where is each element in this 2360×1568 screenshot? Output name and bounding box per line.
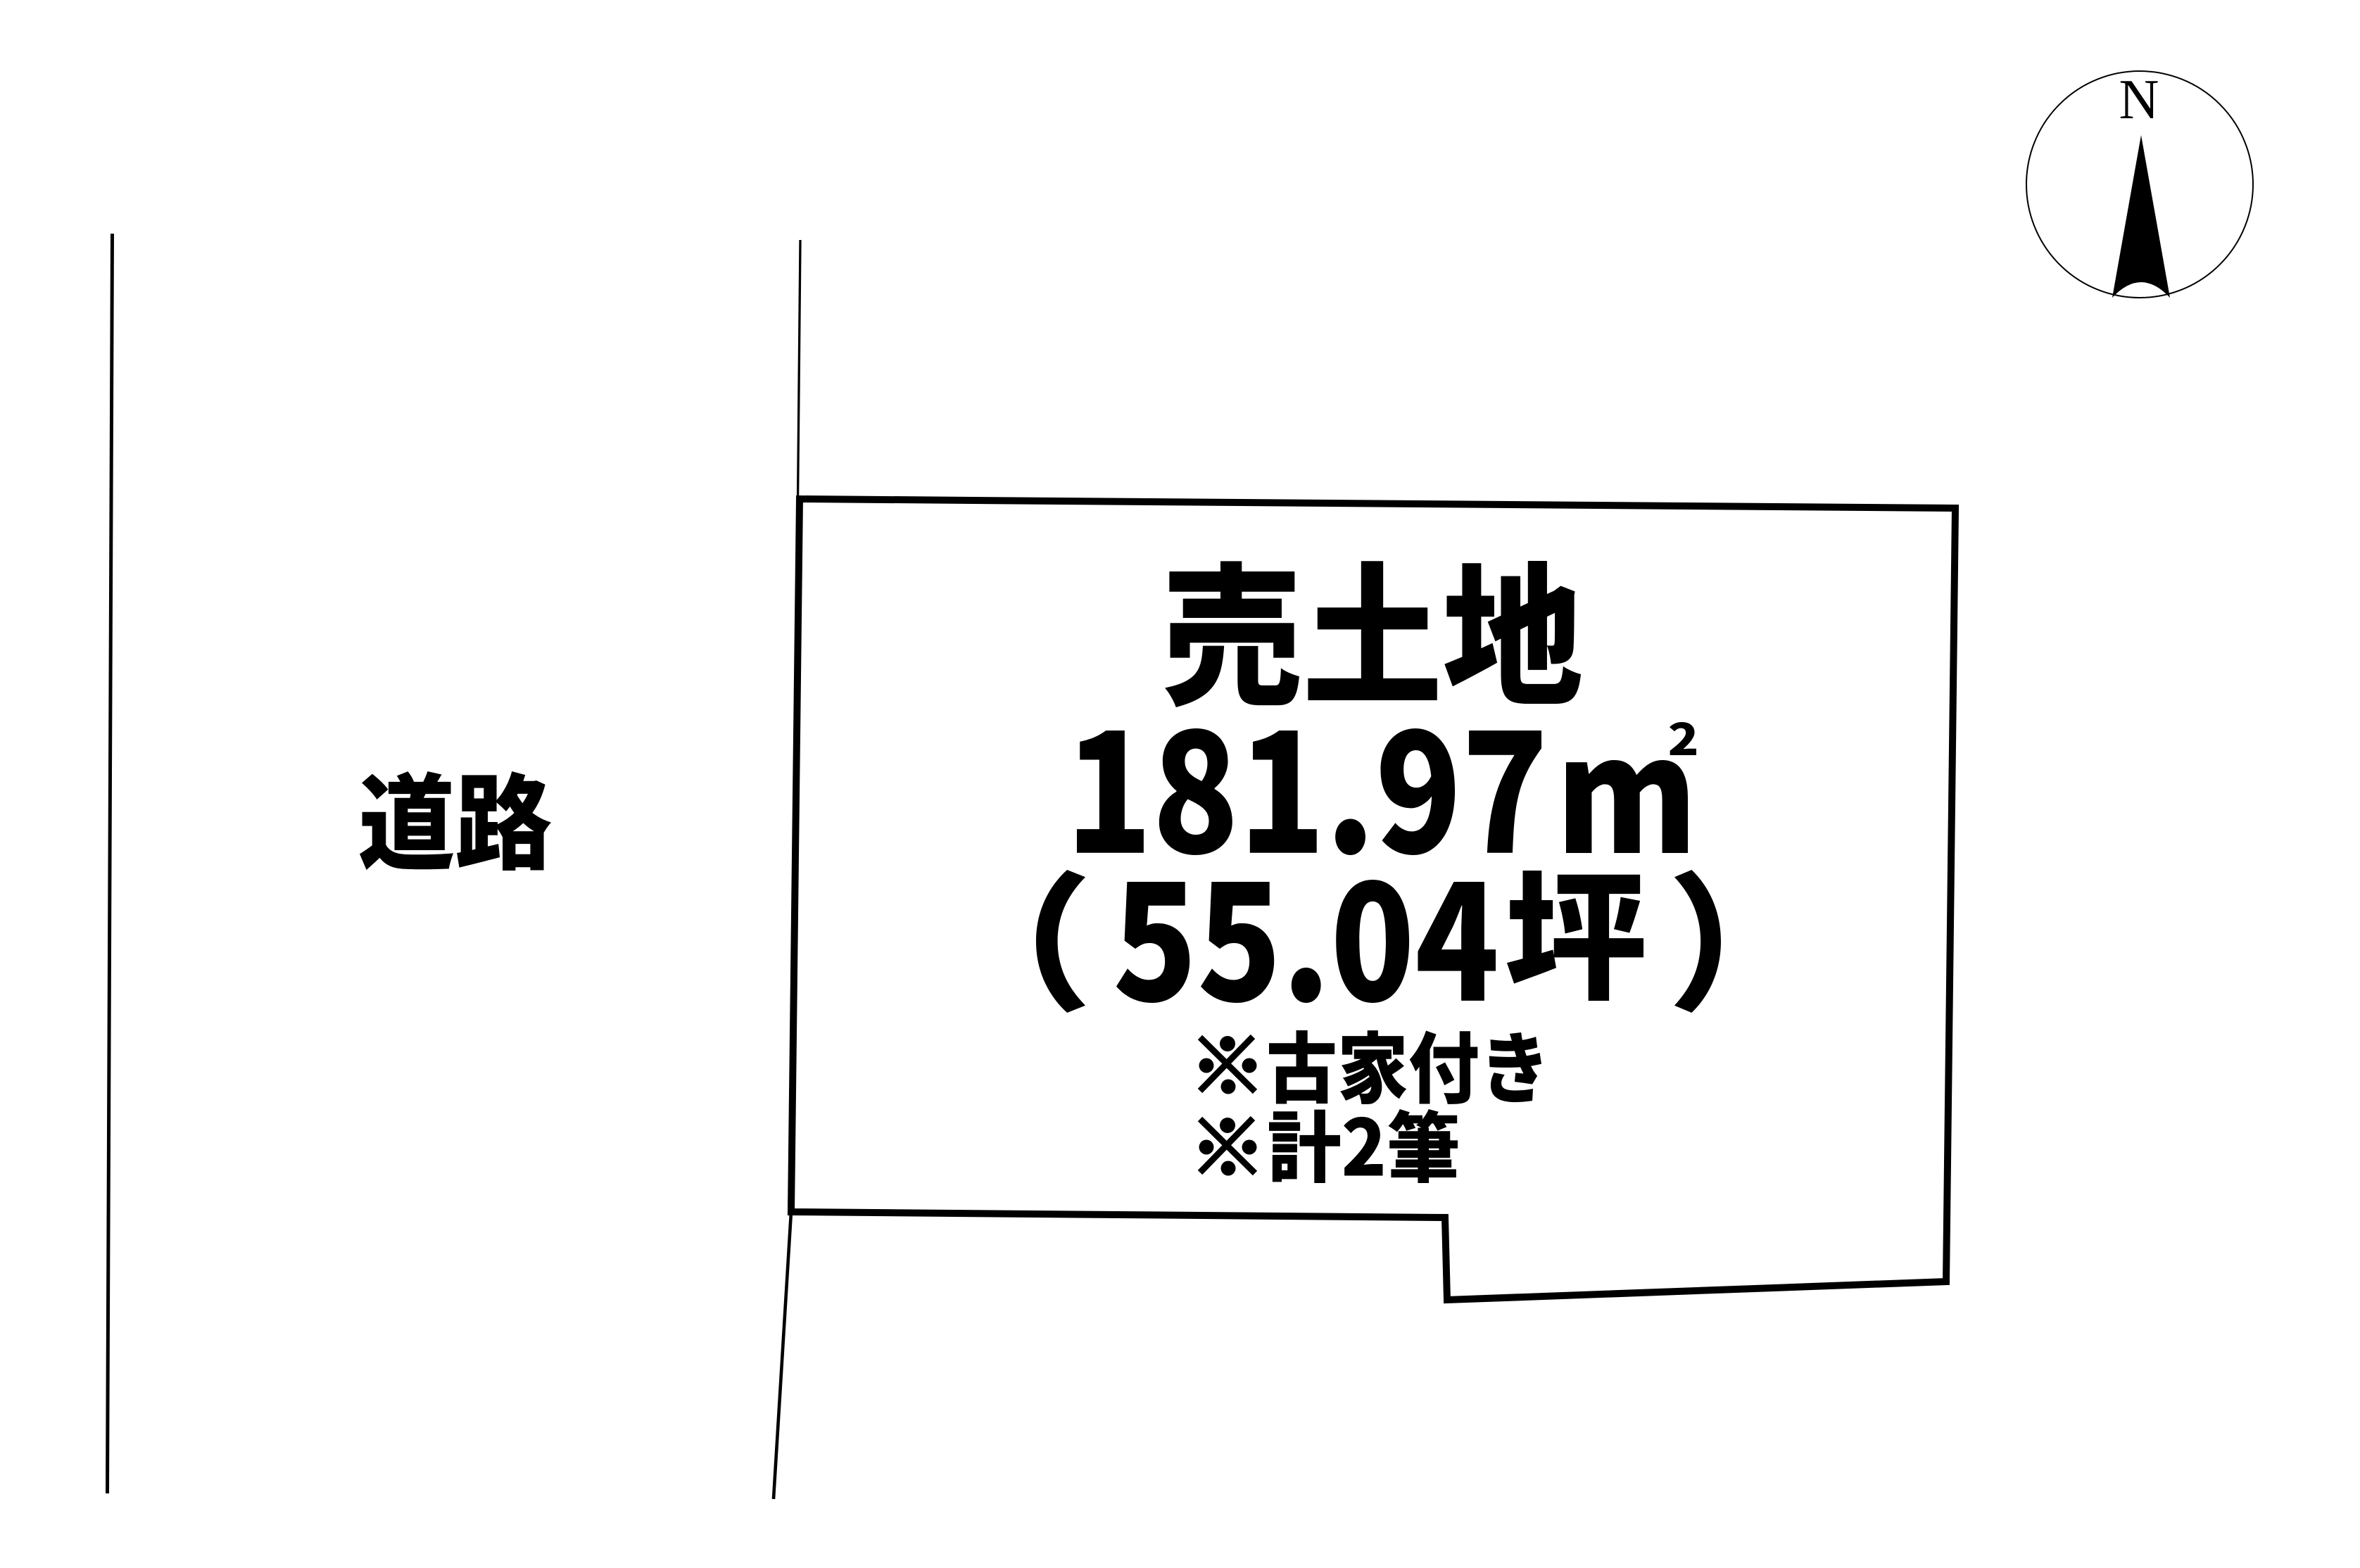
svg-text:N: N xyxy=(2119,69,2159,131)
